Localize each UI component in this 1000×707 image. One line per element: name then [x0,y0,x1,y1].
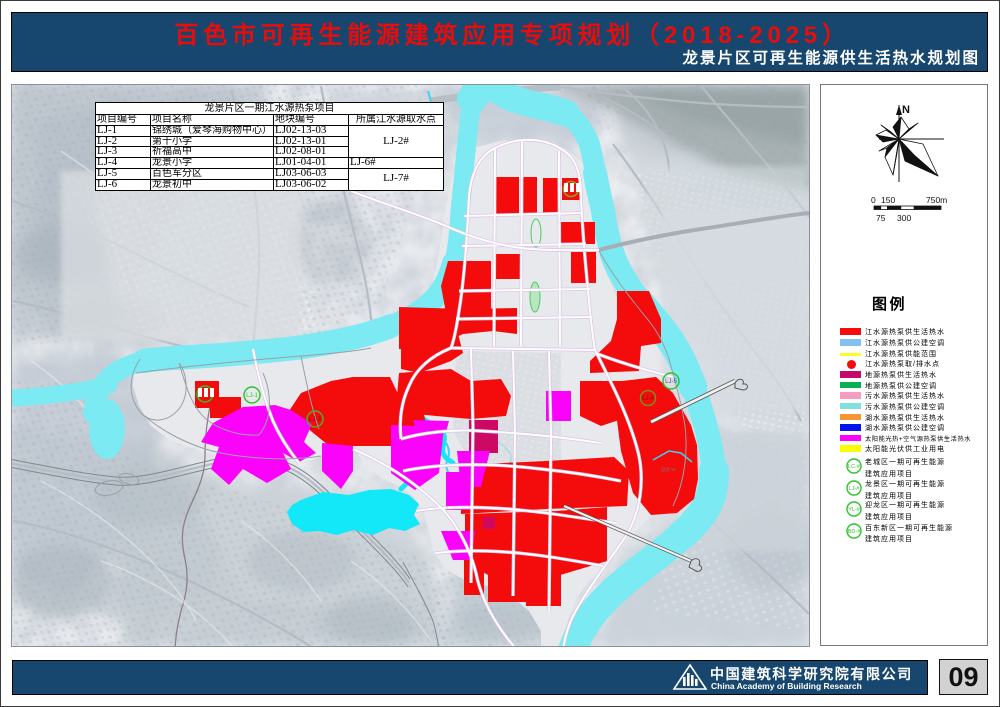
svg-text:300: 300 [897,213,911,223]
svg-text:LJ-#: LJ-# [849,486,861,492]
svg-text:BD-#: BD-# [848,529,861,535]
svg-text:0: 0 [871,195,876,205]
svg-text:LJ-4: LJ-4 [642,396,654,402]
svg-text:迎龙 W: 迎龙 W [661,466,676,473]
svg-text:LJ-3: LJ-3 [309,417,321,423]
svg-text:750m: 750m [926,195,947,205]
svg-text:LC-#: LC-# [848,464,861,470]
svg-text:LJ-1: LJ-1 [246,393,258,399]
svg-text:YL-#: YL-# [848,507,861,513]
svg-text:LJ-5: LJ-5 [665,379,677,385]
svg-text:150: 150 [881,195,895,205]
svg-text:75: 75 [876,213,886,223]
svg-text:N: N [902,104,910,116]
